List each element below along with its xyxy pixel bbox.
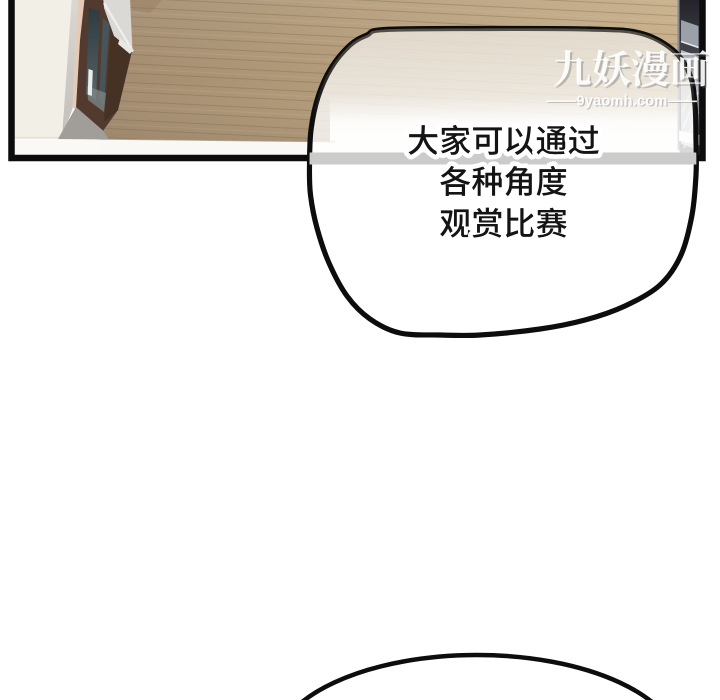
svg-text:——9yaomh.com——: ——9yaomh.com——	[547, 94, 698, 110]
